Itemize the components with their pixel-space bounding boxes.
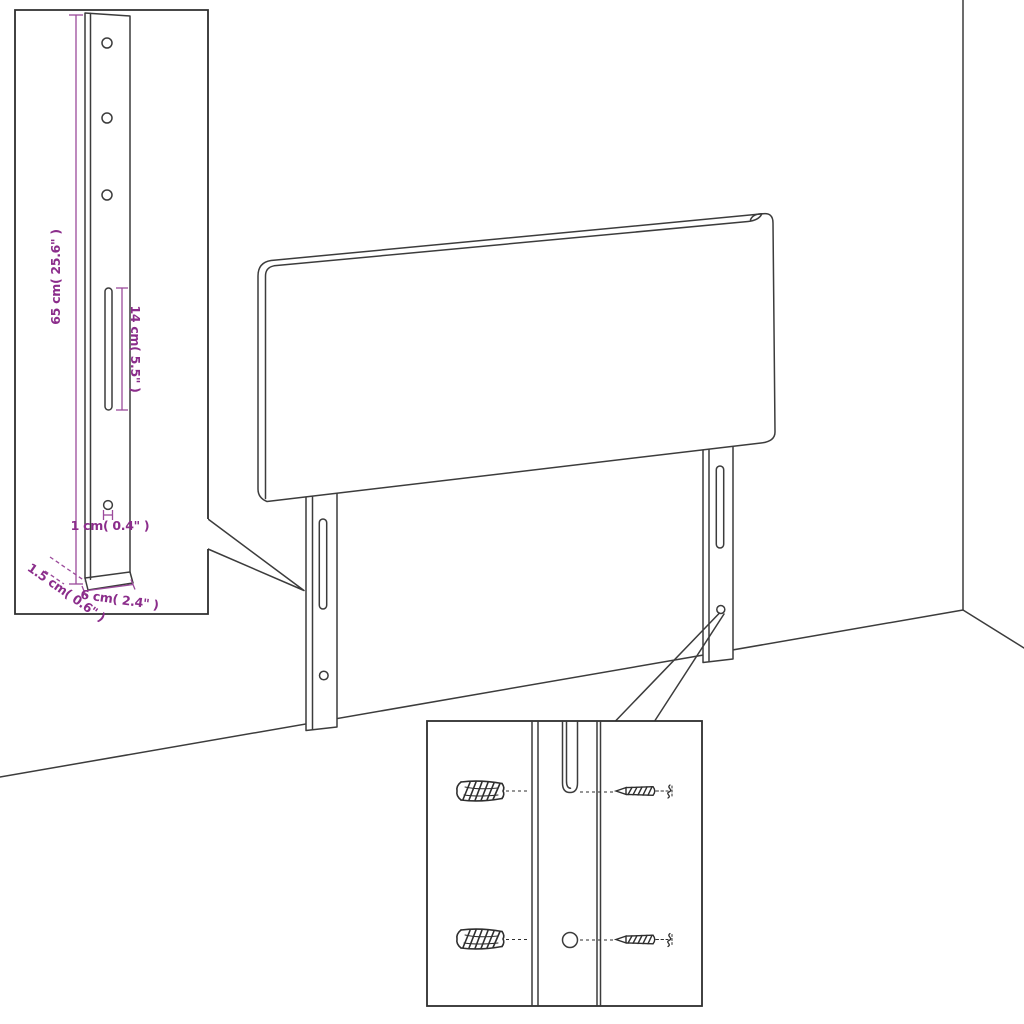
callout-wedge-bottom-line-2 <box>655 614 724 721</box>
headboard-panel <box>258 214 775 502</box>
callout-wedge-top-lines <box>208 519 304 591</box>
headboard-diagram: 65 cm( 25.6" ) 14 cm( 5.5" ) 1 cm( 0.4" … <box>0 0 1024 1024</box>
dimension-hole-label: 1 cm( 0.4" ) <box>71 518 150 533</box>
callout-wedge-top <box>208 519 304 591</box>
bracket-detail-view <box>85 13 133 590</box>
diagram-canvas: 65 cm( 25.6" ) 14 cm( 5.5" ) 1 cm( 0.4" … <box>0 0 1024 1024</box>
dimension-height-label: 65 cm( 25.6" ) <box>48 229 63 324</box>
bracket-body <box>85 13 133 590</box>
right-leg-body <box>703 437 733 663</box>
hardware-detail-callout-box <box>427 721 702 1006</box>
dimension-slot-length-label: 14 cm( 5.5" ) <box>128 305 143 392</box>
headboard-left-leg <box>306 482 337 731</box>
panel-outline <box>258 214 775 502</box>
headboard-right-leg <box>703 437 733 663</box>
